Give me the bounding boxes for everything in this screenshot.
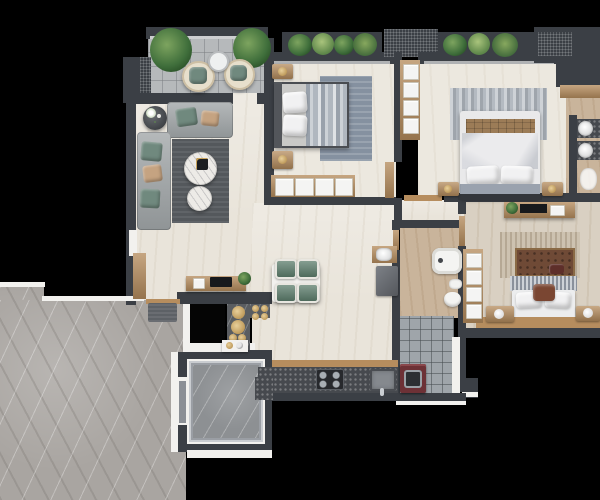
planter-plant — [334, 35, 354, 55]
wardrobe-door — [295, 178, 314, 196]
nightstand-decor — [278, 155, 287, 164]
planter-plant — [353, 33, 377, 56]
elevator-outer-trim-left — [171, 352, 178, 452]
canister — [226, 342, 233, 349]
linen-stack — [403, 82, 419, 98]
nightstand-lamp — [494, 309, 504, 319]
planter-plant — [312, 33, 334, 55]
towel-stack — [466, 287, 482, 302]
bathtub-drain — [438, 258, 443, 263]
coffee-table-tray — [196, 158, 208, 170]
dining-chair — [275, 283, 297, 303]
linen-stack — [403, 118, 419, 134]
corridor-wall-trim-a — [0, 282, 45, 287]
ensuite-toilet — [580, 168, 597, 190]
entry-doormat — [148, 303, 177, 322]
master-pillow — [501, 165, 534, 184]
ensuite-basin — [578, 143, 593, 158]
planter-plant — [288, 34, 312, 56]
bedroom3-tv — [520, 204, 547, 213]
bathroom-sink — [449, 279, 462, 289]
flowers — [146, 108, 156, 118]
kitchen-faucet — [380, 388, 384, 396]
bedroom3-accent-pillow-dark — [549, 264, 564, 274]
towel-stack — [466, 304, 482, 319]
planter-plant — [443, 34, 467, 56]
sofa-pillow-green — [140, 141, 163, 162]
cooktop — [316, 369, 344, 390]
planter-plant — [492, 33, 518, 57]
wardrobe-door — [275, 178, 294, 196]
ensuite-basin — [578, 121, 593, 136]
console-plant — [238, 272, 251, 285]
elevator-outer-trim-bottom — [187, 450, 272, 458]
louver-vent-right — [538, 32, 572, 56]
bed2-headboard — [274, 82, 282, 148]
linen-stack — [403, 64, 419, 80]
sofa-pillow-green — [140, 188, 161, 208]
bedroom2-bottom-wall — [264, 197, 396, 205]
sofa-pillow-green — [175, 107, 198, 128]
sofa-pillow-tan — [200, 110, 219, 127]
nook-cabinet — [376, 266, 398, 296]
bed2-duvet — [306, 84, 347, 146]
floor-plan — [0, 0, 600, 500]
planter-plant — [468, 33, 490, 55]
bedroom2-door-leaf — [385, 162, 394, 198]
towel-stack — [466, 253, 482, 268]
master-headboard — [458, 194, 542, 200]
master-pillow — [467, 165, 500, 185]
wood-disc — [261, 305, 268, 312]
service-shaft-void — [190, 304, 225, 343]
canister — [236, 342, 243, 349]
linen-stack — [403, 100, 419, 116]
console-tv — [210, 277, 232, 287]
bed2-pillow — [282, 114, 307, 136]
dining-chair — [297, 283, 319, 303]
wood-disc — [252, 305, 259, 312]
elevator-cab-floor — [193, 365, 259, 438]
console-papers — [550, 205, 565, 216]
wood-disc — [231, 320, 245, 334]
chair-cushion — [189, 67, 207, 84]
ensuite-wall — [569, 115, 577, 195]
bedroom3-left-wall-upper — [458, 201, 466, 214]
wardrobe-door — [335, 178, 353, 196]
bedroom3-bottom-wall — [458, 328, 600, 338]
corridor-wall-trim-b — [42, 296, 144, 301]
bed2-pillow — [282, 91, 307, 114]
entry-cabinet — [133, 253, 146, 299]
elevator-door-panel — [179, 381, 186, 423]
chair-cushion — [230, 65, 247, 81]
bedroom3-headboard — [515, 248, 575, 277]
master-door-threshold — [404, 195, 442, 201]
console-plant — [506, 202, 518, 214]
nightstand-lamp — [583, 308, 593, 318]
louver-vent-left — [140, 57, 151, 97]
dining-chair — [297, 259, 319, 279]
wood-disc — [232, 306, 245, 319]
bathroom-toilet — [444, 292, 461, 307]
wood-disc — [261, 313, 268, 320]
kitchen-counter-return — [255, 377, 273, 400]
sofa-pillow-tan — [142, 164, 163, 183]
console-frame — [193, 278, 205, 289]
master-bed-duvet — [462, 133, 538, 169]
nightstand-decor — [444, 185, 452, 193]
bathtub — [432, 248, 462, 274]
nook-basin — [376, 248, 392, 261]
kitchen-bottom-wall — [252, 393, 466, 401]
towel-stack — [466, 270, 482, 285]
bathroom-left-wall-upper — [392, 220, 400, 230]
nightstand-decor — [548, 185, 556, 193]
wood-disc — [252, 313, 259, 320]
coffee-table-small — [187, 186, 212, 211]
bathroom-top-wall — [394, 220, 464, 228]
ensuite-shelf — [560, 85, 600, 98]
utility-white-wall — [452, 337, 460, 397]
bedroom3-accent-pillow-brown — [533, 284, 555, 301]
wardrobe-door — [315, 178, 334, 196]
entry-wall-above-shaft — [177, 292, 272, 304]
washer-door — [404, 370, 422, 388]
bedroom3-door-leaf — [459, 216, 465, 246]
corridor-marble-floor — [0, 300, 186, 500]
kitchen-bottom-trim — [396, 401, 466, 405]
nightstand-decor — [278, 67, 287, 76]
balcony-table — [208, 51, 229, 72]
dining-chair — [275, 259, 297, 279]
